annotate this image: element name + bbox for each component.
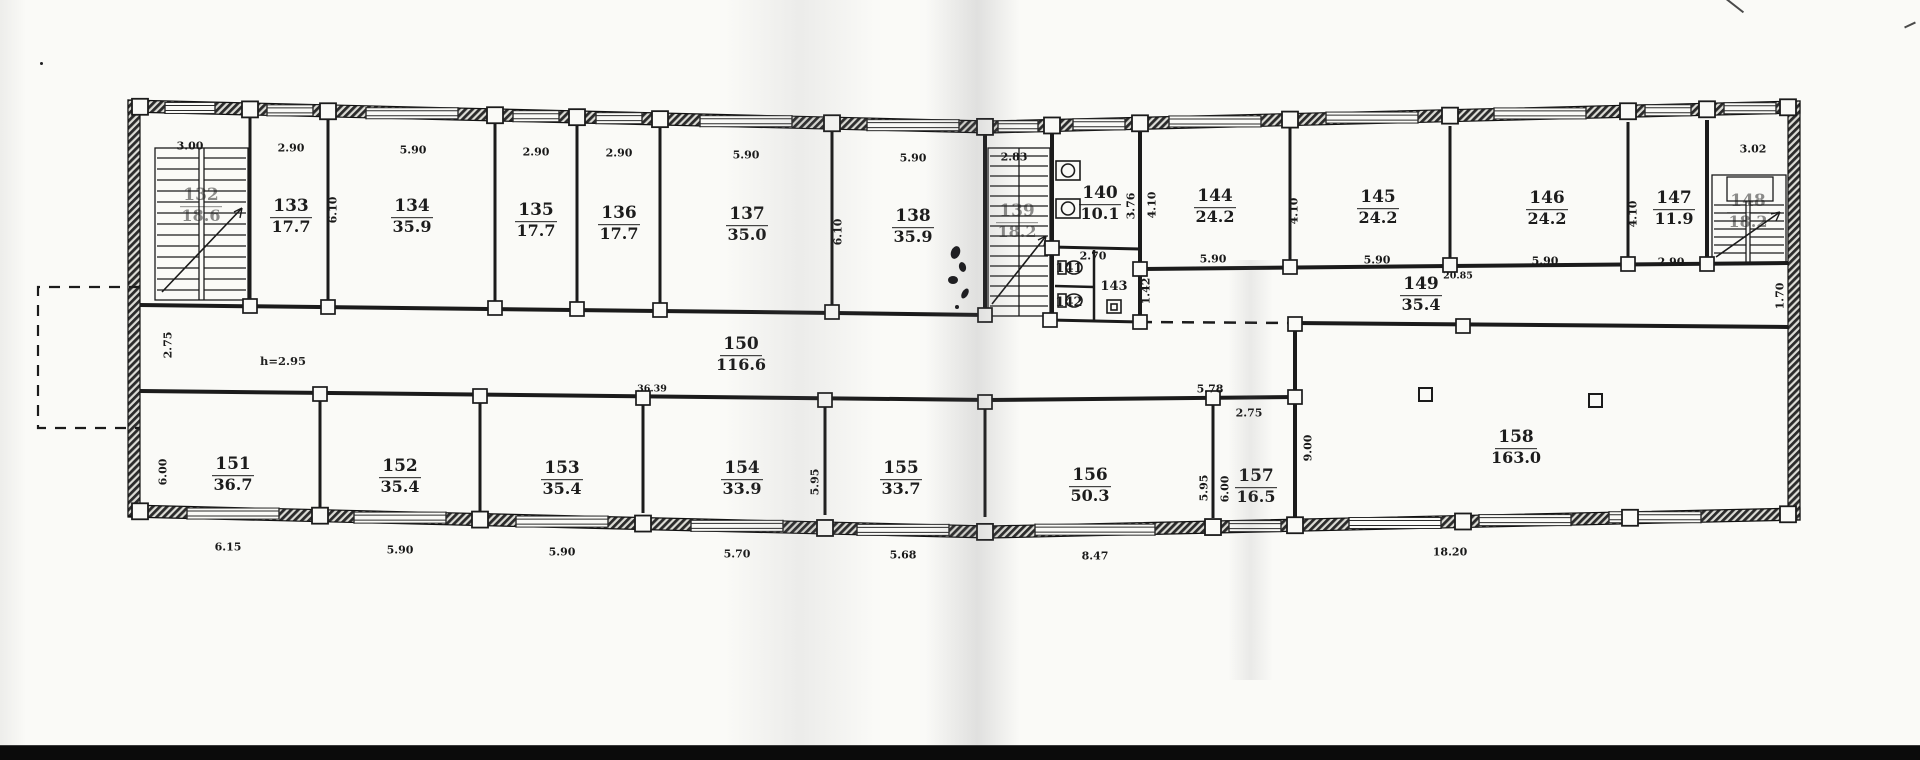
scanned-floor-plan-page: h=2.95 13218.613317.713435.913517.713617… — [0, 0, 1920, 760]
drain-icon — [1107, 300, 1121, 313]
plumbing-fixtures — [1056, 161, 1121, 313]
stairwell-right — [1712, 175, 1786, 263]
interior-walls — [140, 112, 1788, 519]
wall-columns — [132, 99, 1796, 540]
sink-icon — [1056, 199, 1080, 218]
floor-plan-drawing — [0, 0, 1920, 760]
sink-icon — [1056, 161, 1080, 180]
structural-columns — [1419, 388, 1602, 407]
toilet-icon — [1058, 294, 1082, 307]
outer-walls — [128, 100, 1800, 538]
toilet-icon — [1058, 261, 1082, 274]
stairwell-middle — [988, 148, 1050, 316]
window-openings — [165, 102, 1776, 536]
stairwell-left — [155, 148, 248, 300]
